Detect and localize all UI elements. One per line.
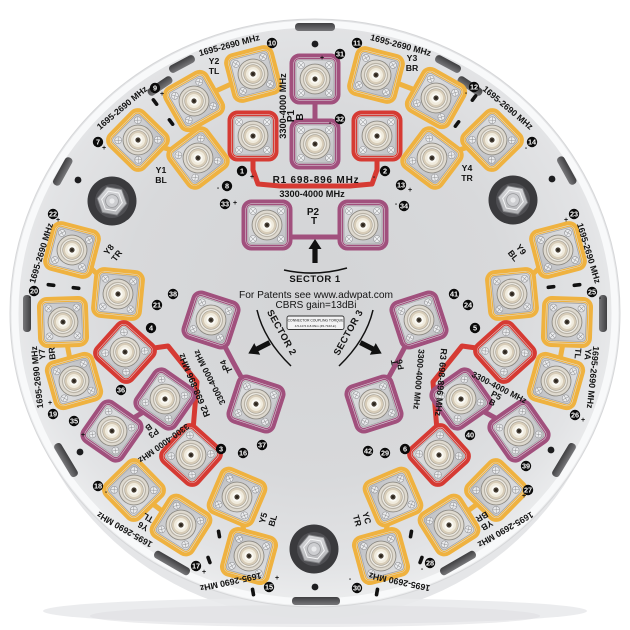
svg-text:38: 38: [169, 290, 177, 299]
svg-text:14: 14: [528, 138, 537, 147]
svg-text:CONNECTOR COUPLING TORQUE: CONNECTOR COUPLING TORQUE: [288, 319, 345, 323]
svg-text:TR: TR: [461, 173, 473, 183]
svg-text:35: 35: [70, 417, 78, 426]
svg-text:26: 26: [571, 411, 579, 420]
svg-text:+: +: [581, 417, 585, 424]
svg-text:+: +: [233, 200, 237, 207]
svg-text:17: 17: [192, 562, 200, 571]
svg-text:42: 42: [364, 447, 372, 456]
svg-text:9: 9: [153, 84, 157, 93]
svg-text:2: 2: [383, 167, 387, 176]
svg-text:BR: BR: [46, 346, 57, 360]
svg-text:BR: BR: [406, 63, 419, 73]
svg-text:3: 3: [219, 445, 223, 454]
svg-text:TL: TL: [573, 348, 584, 360]
svg-text:4.5-10 5.0-8.0Nm (45-71lbf-in): 4.5-10 5.0-8.0Nm (45-71lbf-in): [295, 324, 337, 328]
svg-text:BL: BL: [155, 175, 167, 185]
svg-text:R1 698-896 MHz: R1 698-896 MHz: [273, 175, 360, 186]
svg-text:36: 36: [117, 386, 125, 395]
svg-text:29: 29: [381, 449, 389, 458]
svg-text:SECTOR 1: SECTOR 1: [289, 274, 341, 285]
svg-text:16: 16: [239, 449, 247, 458]
svg-text:13: 13: [397, 181, 405, 190]
svg-text:37: 37: [258, 441, 266, 450]
svg-text:24: 24: [464, 301, 473, 310]
svg-text:6: 6: [403, 445, 407, 454]
svg-text:+: +: [202, 569, 206, 576]
svg-text:12: 12: [470, 83, 478, 92]
svg-text:Y4: Y4: [462, 163, 473, 173]
svg-text:39: 39: [522, 462, 530, 471]
svg-text:CBRS gain=13dBi: CBRS gain=13dBi: [276, 300, 357, 311]
svg-text:3300-4000 MHz: 3300-4000 MHz: [278, 73, 288, 139]
svg-text:TL: TL: [209, 66, 220, 76]
svg-text:T: T: [311, 216, 317, 227]
svg-text:33: 33: [221, 200, 229, 209]
svg-text:+: +: [522, 493, 526, 500]
svg-text:7: 7: [96, 138, 100, 147]
svg-text:+: +: [320, 55, 324, 62]
svg-text:15: 15: [265, 583, 273, 592]
svg-text:1: 1: [240, 167, 244, 176]
svg-text:+: +: [250, 174, 254, 181]
svg-text:25: 25: [588, 288, 596, 297]
svg-text:+: +: [48, 400, 52, 407]
svg-text:+: +: [102, 145, 106, 152]
svg-text:21: 21: [153, 301, 161, 310]
svg-text:32: 32: [336, 115, 344, 124]
svg-text:34: 34: [400, 202, 409, 211]
svg-text:+: +: [160, 91, 164, 98]
svg-text:18: 18: [94, 482, 102, 491]
svg-text:19: 19: [49, 410, 57, 419]
svg-text:5: 5: [473, 324, 477, 333]
svg-text:30: 30: [353, 584, 361, 593]
svg-text:+: +: [408, 187, 412, 194]
svg-text:+: +: [564, 217, 568, 224]
svg-text:+: +: [81, 432, 85, 439]
svg-text:3300-4000 MHz: 3300-4000 MHz: [279, 189, 345, 199]
svg-text:41: 41: [450, 290, 458, 299]
svg-text:23: 23: [570, 210, 578, 219]
svg-text:31: 31: [336, 50, 344, 59]
svg-text:10: 10: [268, 39, 276, 48]
svg-text:8: 8: [225, 182, 229, 191]
svg-text:+: +: [56, 217, 60, 224]
svg-text:40: 40: [466, 431, 474, 440]
svg-text:11: 11: [353, 39, 361, 48]
svg-text:Y1: Y1: [156, 165, 167, 175]
svg-text:28: 28: [426, 559, 434, 568]
svg-text:+: +: [275, 575, 279, 582]
svg-text:Y2: Y2: [209, 56, 220, 66]
svg-text:Y3: Y3: [407, 53, 418, 63]
svg-text:B: B: [295, 113, 306, 120]
